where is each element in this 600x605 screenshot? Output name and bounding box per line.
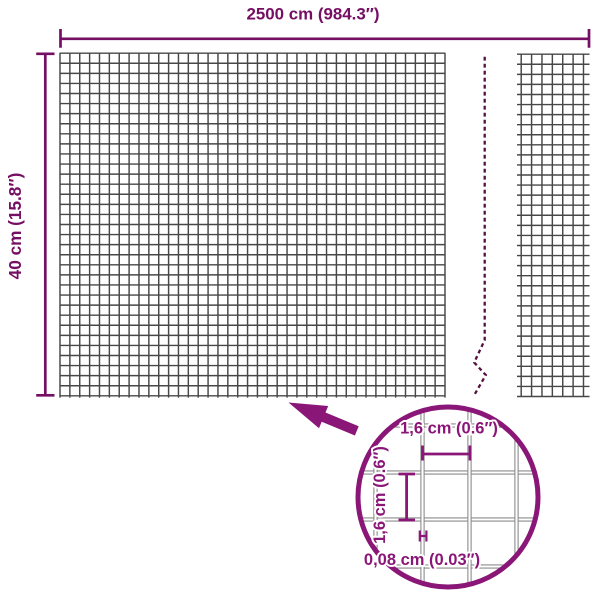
svg-text:1,6 cm (0.6″): 1,6 cm (0.6″) [400, 420, 498, 438]
svg-text:2500 cm (984.3″): 2500 cm (984.3″) [247, 5, 380, 24]
svg-text:1,6 cm (0.6″): 1,6 cm (0.6″) [371, 446, 389, 544]
svg-text:40 cm (15.8″): 40 cm (15.8″) [5, 173, 25, 280]
svg-text:0,08 cm (0.03″): 0,08 cm (0.03″) [364, 551, 480, 569]
